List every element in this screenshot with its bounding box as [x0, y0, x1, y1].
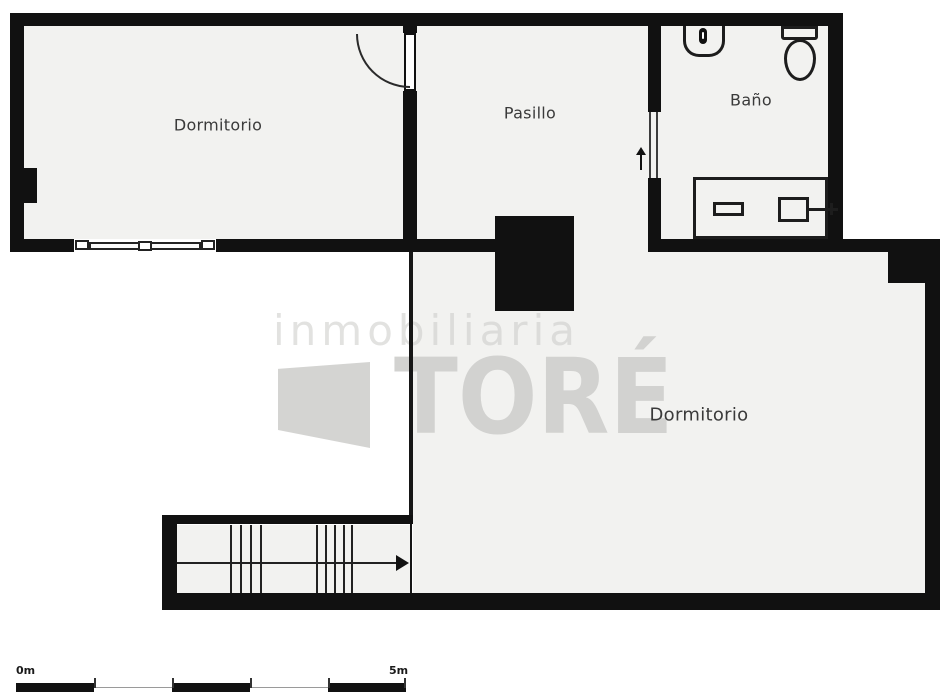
scale-tick [328, 678, 330, 688]
watermark-brand-name: TORÉ [394, 350, 673, 446]
scale-tick [172, 678, 174, 688]
room-label-bano: Baño [730, 91, 772, 110]
entry-arrow-stem [640, 154, 642, 170]
partition-stub [403, 26, 417, 33]
pocket-door-icon [649, 112, 651, 178]
right-wall [925, 239, 940, 610]
scale-tick [250, 678, 252, 688]
stairwell-top-wall [162, 515, 413, 524]
bathtub-faucet-pipe [808, 208, 838, 211]
left-wall [10, 13, 24, 252]
toilet-tank-icon [781, 26, 818, 40]
scale-tick [404, 678, 406, 688]
room-stairwell [177, 525, 410, 593]
scale-label-start: 0m [16, 664, 35, 677]
dormitorio-2-left-wall [409, 252, 413, 515]
room-label-dormitorio-1: Dormitorio [174, 116, 262, 135]
passage-opening [574, 239, 648, 252]
scale-segment [172, 683, 250, 692]
pocket-door-icon [656, 112, 658, 178]
scale-label-end: 5m [389, 664, 408, 677]
room-label-dormitorio-2: Dormitorio [650, 405, 749, 426]
stair-step [325, 525, 327, 593]
scale-segment [328, 683, 406, 692]
watermark-logo-shape [278, 362, 370, 448]
stair-step [230, 525, 232, 593]
sink-faucet-slot [702, 32, 704, 39]
window-mullion [138, 241, 152, 251]
room-pasillo [417, 26, 648, 239]
partition-dormitorio-pasillo [403, 91, 417, 252]
stair-step [316, 525, 318, 593]
stairs-center-line [177, 562, 398, 564]
bathtub-tray [713, 202, 744, 216]
scale-tick [94, 678, 96, 688]
window-end-cap [75, 240, 89, 250]
top-wall [10, 13, 843, 26]
scale-segment [16, 683, 94, 692]
stair-step [343, 525, 345, 593]
bathtub-faucet-icon [778, 197, 809, 222]
bano-right-wall [828, 13, 843, 252]
window-end-cap [201, 240, 215, 250]
bathtub-faucet-cap [830, 203, 833, 215]
bottom-wall [162, 593, 940, 610]
stair-step [260, 525, 262, 593]
sink-faucet-icon [699, 28, 707, 44]
partition-bano-upper [648, 26, 661, 112]
wall-pilaster [24, 168, 37, 203]
stairs-direction-arrow-icon [396, 555, 409, 571]
corner-pillar [888, 248, 925, 283]
stair-step [250, 525, 252, 593]
floorplan-canvas: inmobiliaria TORÉ [0, 0, 946, 696]
stair-step [351, 525, 353, 593]
stairs-room-divider [410, 524, 412, 593]
room-label-pasillo: Pasillo [504, 104, 556, 123]
stair-step [240, 525, 242, 593]
chimney-column [495, 216, 574, 311]
stairwell-left-wall [162, 515, 177, 610]
stair-step [334, 525, 336, 593]
